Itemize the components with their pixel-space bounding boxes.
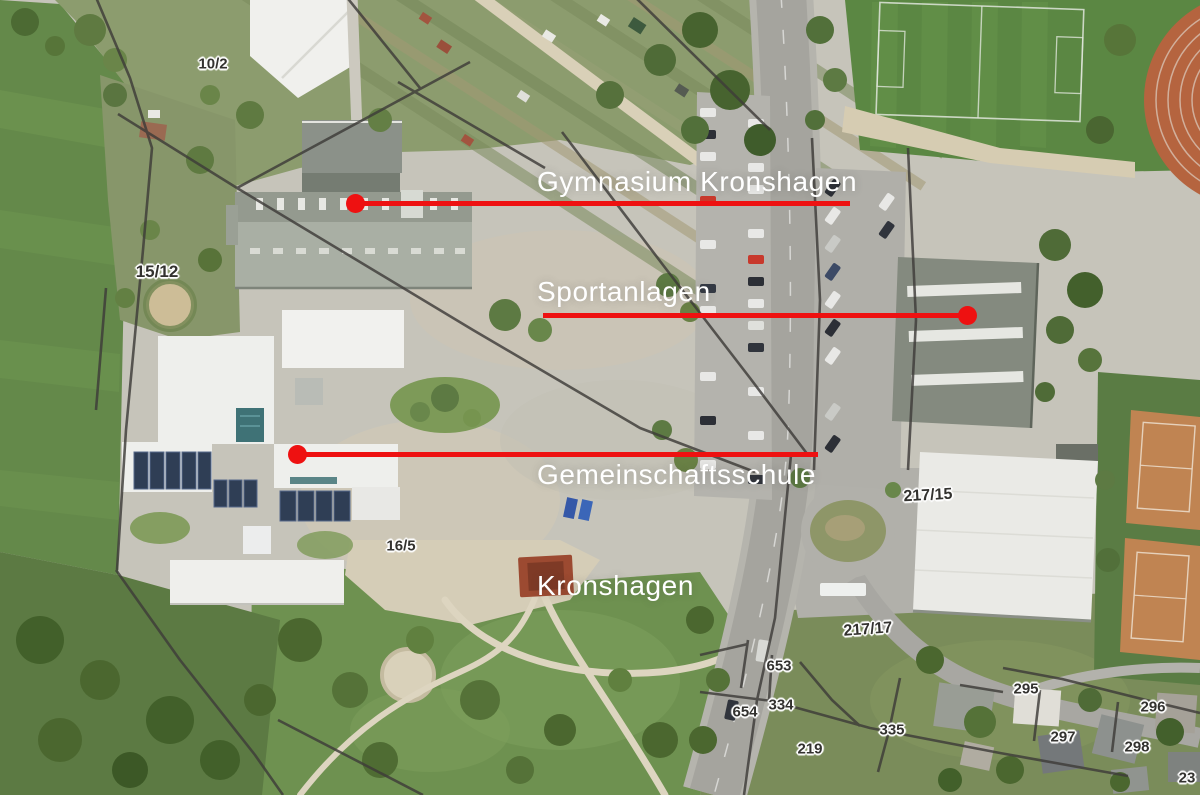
parcel-label: 296	[1140, 699, 1165, 716]
annotation-label-gymnasium: Gymnasium Kronshagen	[537, 163, 857, 200]
annotation-line-gemeinschaftsschule	[297, 452, 818, 457]
marker-dot	[346, 194, 365, 213]
parcel-label: 219	[797, 741, 822, 758]
parcel-label: 217/17	[843, 619, 893, 640]
annotation-label-sportanlagen: Sportanlagen	[537, 273, 711, 310]
parcel-label: 23	[1179, 770, 1196, 787]
parcel-label: 16/5	[386, 538, 415, 555]
parcel-label: 654	[732, 704, 757, 721]
parcel-label: 334	[768, 697, 793, 714]
annotation-label-line1: Gemeinschaftsschule	[537, 456, 816, 493]
map-canvas: Gymnasium Kronshagen Sportanlagen Gemein…	[0, 0, 1200, 795]
parcel-label: 335	[879, 722, 904, 739]
marker-dot	[958, 306, 977, 325]
parcel-label: 297	[1050, 729, 1075, 746]
parcel-label: 653	[766, 658, 791, 675]
parcel-label: 15/12	[136, 262, 179, 282]
annotation-overlay: Gymnasium Kronshagen Sportanlagen Gemein…	[0, 0, 1200, 795]
parcel-label: 10/2	[198, 56, 227, 73]
annotation-line-gymnasium	[355, 201, 850, 206]
annotation-line-sportanlagen	[543, 313, 968, 318]
parcel-label: 217/15	[903, 486, 953, 507]
parcel-label: 298	[1124, 739, 1149, 756]
marker-dot	[288, 445, 307, 464]
parcel-label: 295	[1013, 681, 1038, 698]
annotation-label-gemeinschaftsschule: Gemeinschaftsschule Kronshagen	[537, 382, 816, 678]
annotation-label-line2: Kronshagen	[537, 567, 816, 604]
